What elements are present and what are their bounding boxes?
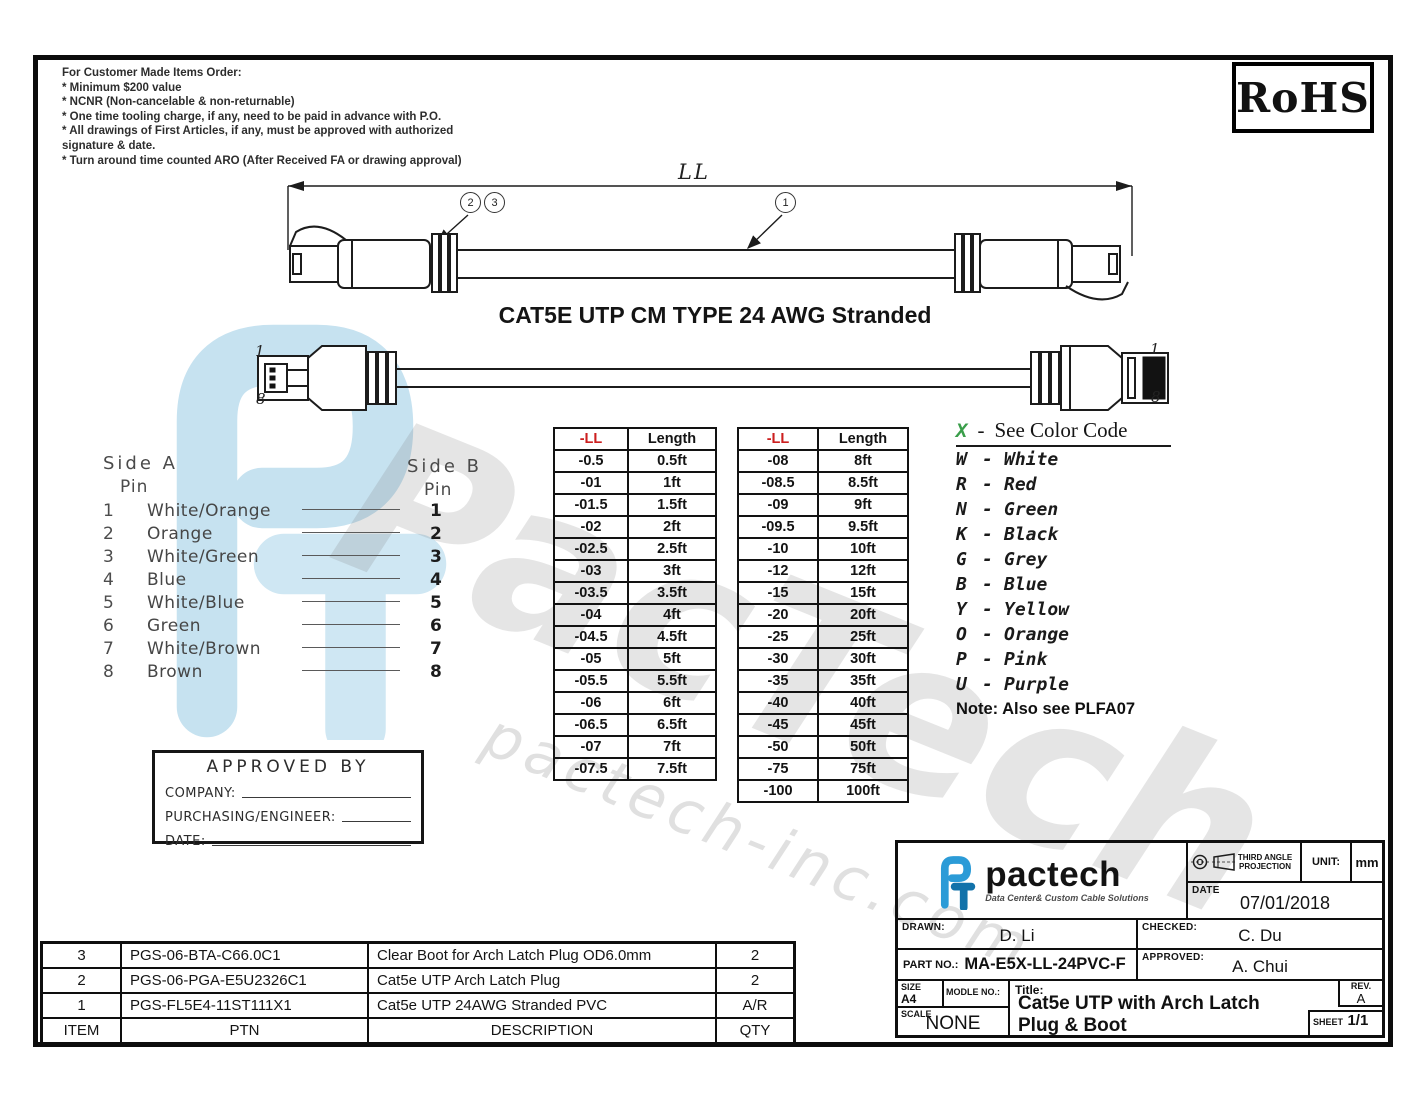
date-signature-line <box>212 845 411 846</box>
ll-code: -0.5 <box>554 450 628 472</box>
length-value: 9.5ft <box>818 516 908 538</box>
scale-label: SCALE <box>901 1009 932 1019</box>
ll-code: -09 <box>738 494 818 516</box>
side-b-pin-number: 2 <box>430 524 442 544</box>
length-value: 1ft <box>628 472 716 494</box>
pinout-row: 1 White/Orange 1 <box>103 499 583 522</box>
company-label: COMPANY: <box>165 786 236 801</box>
length-value: 45ft <box>818 714 908 736</box>
part-no-value: MA-E5X-LL-24PVC-F <box>964 955 1125 974</box>
ll-code: -04.5 <box>554 626 628 648</box>
color-code-entry: G - Grey <box>956 547 1171 572</box>
purchasing-label: PURCHASING/ENGINEER: <box>165 810 336 825</box>
date-label: DATE <box>1192 885 1220 896</box>
bom-header-row: ITEM PTN DESCRIPTION QTY <box>42 1018 795 1044</box>
side-b-pin-number: 7 <box>430 639 442 659</box>
wire-color-name: White/Orange <box>147 501 302 521</box>
note-line: * All drawings of First Articles, if any… <box>62 124 462 139</box>
ll-code: -06.5 <box>554 714 628 736</box>
side-b-pin-number: 6 <box>430 616 442 636</box>
module-no-cell: MODLE NO.: <box>942 981 1008 1006</box>
ll-code: -06 <box>554 692 628 714</box>
bom-row: 3 PGS-06-BTA-C66.0C1 Clear Boot for Arch… <box>42 943 795 969</box>
length-value: 1.5ft <box>628 494 716 516</box>
color-code-entry: R - Red <box>956 472 1171 497</box>
checked-label: CHECKED: <box>1142 922 1197 933</box>
bom-qty: A/R <box>716 993 795 1018</box>
length-row: -45 45ft <box>738 714 908 736</box>
ll-column-header: -LL <box>738 428 818 450</box>
length-row: -04.5 4.5ft <box>554 626 716 648</box>
ll-code: -10 <box>738 538 818 560</box>
wire-connection-line <box>302 601 400 602</box>
callout-2-bubble: 2 <box>460 192 481 213</box>
color-letter: B <box>956 574 982 595</box>
ll-code: -03.5 <box>554 582 628 604</box>
side-a-pin-number: 4 <box>103 570 147 590</box>
pin-label-right-bottom: 8 <box>1151 388 1161 406</box>
color-code-x: X <box>956 420 967 442</box>
brand-tagline: Data Center& Custom Cable Solutions <box>985 893 1149 903</box>
ll-code: -45 <box>738 714 818 736</box>
length-row: -05 5ft <box>554 648 716 670</box>
purchasing-signature-line <box>342 821 411 822</box>
pinout-row: 4 Blue 4 <box>103 568 583 591</box>
module-no-label: MODLE NO.: <box>946 987 1000 997</box>
title-cell: Title: Cat5e UTP with Arch Latch Plug & … <box>1008 981 1382 1035</box>
length-value: 35ft <box>818 670 908 692</box>
side-a-pin-number: 2 <box>103 524 147 544</box>
pactech-logo-icon <box>935 852 977 910</box>
pinout-row: 8 Brown 8 <box>103 660 583 683</box>
length-row: -25 25ft <box>738 626 908 648</box>
ll-code: -50 <box>738 736 818 758</box>
length-value: 4ft <box>628 604 716 626</box>
ll-code: -03 <box>554 560 628 582</box>
length-row: -01.5 1.5ft <box>554 494 716 516</box>
length-value: 50ft <box>818 736 908 758</box>
callout-2-3: 2 3 <box>460 192 505 213</box>
color-letter: O <box>956 624 982 645</box>
bom-description: Clear Boot for Arch Latch Plug OD6.0mm <box>368 943 716 969</box>
length-row: -04 4ft <box>554 604 716 626</box>
color-code-entry: W - White <box>956 447 1171 472</box>
ll-code: -100 <box>738 780 818 802</box>
color-letter: Y <box>956 599 982 620</box>
note-line: signature & date. <box>62 139 462 154</box>
wire-connection-line <box>302 647 400 648</box>
color-code-entry: K - Black <box>956 522 1171 547</box>
ll-code: -25 <box>738 626 818 648</box>
side-a-title: Side A <box>103 453 178 474</box>
length-table-1: -LL Length -0.5 0.5ft -01 1ft -01.5 1.5f… <box>553 427 717 781</box>
ll-code: -05.5 <box>554 670 628 692</box>
approved-cell: APPROVED: A. Chui <box>1136 950 1382 979</box>
color-name: Green <box>1004 499 1058 520</box>
length-value: 40ft <box>818 692 908 714</box>
pinout-row: 2 Orange 2 <box>103 522 583 545</box>
pinout-row: 6 Green 6 <box>103 614 583 637</box>
wire-connection-line <box>302 670 400 671</box>
sheet-cell: SHEET 1/1 <box>1308 1010 1382 1035</box>
brand-logo-cell: pactech Data Center& Custom Cable Soluti… <box>898 843 1186 918</box>
color-name: Blue <box>1004 574 1047 595</box>
ll-code: -02.5 <box>554 538 628 560</box>
side-a-pin-number: 8 <box>103 662 147 682</box>
pin-label-left-top: 1 <box>255 342 265 360</box>
bom-item: 1 <box>42 993 122 1018</box>
length-row: -20 20ft <box>738 604 908 626</box>
length-value: 2.5ft <box>628 538 716 560</box>
side-b-pin-number: 1 <box>430 501 442 521</box>
callout-1: 1 <box>775 192 796 213</box>
bom-table: 3 PGS-06-BTA-C66.0C1 Clear Boot for Arch… <box>40 941 796 1045</box>
color-letter: N <box>956 499 982 520</box>
ll-code: -05 <box>554 648 628 670</box>
ll-code: -75 <box>738 758 818 780</box>
length-row: -40 40ft <box>738 692 908 714</box>
wire-color-name: White/Brown <box>147 639 302 659</box>
color-letter: P <box>956 649 982 670</box>
color-code-note: Note: Also see PLFA07 <box>956 700 1171 719</box>
color-name: Red <box>1004 474 1037 495</box>
side-a-pin-number: 1 <box>103 501 147 521</box>
checked-cell: CHECKED: C. Du <box>1136 920 1382 948</box>
wire-connection-line <box>302 509 400 510</box>
length-value: 7ft <box>628 736 716 758</box>
ll-code: -02 <box>554 516 628 538</box>
bom-row: 2 PGS-06-PGA-E5U2326C1 Cat5e UTP Arch La… <box>42 968 795 993</box>
scale-cell: SCALE NONE <box>898 1006 1008 1035</box>
sheet-label: SHEET <box>1313 1017 1343 1027</box>
color-name: Yellow <box>1004 599 1069 620</box>
side-b-pin-number: 3 <box>430 547 442 567</box>
length-value: 30ft <box>818 648 908 670</box>
length-table-2-header: -LL Length <box>738 428 908 450</box>
length-value: 10ft <box>818 538 908 560</box>
length-row: -08.5 8.5ft <box>738 472 908 494</box>
length-row: -15 15ft <box>738 582 908 604</box>
wire-color-name: Brown <box>147 662 302 682</box>
bom-qty: 2 <box>716 943 795 969</box>
pinout-row: 7 White/Brown 7 <box>103 637 583 660</box>
length-value: 0.5ft <box>628 450 716 472</box>
wire-color-name: Green <box>147 616 302 636</box>
approval-box-title: APPROVED BY <box>165 757 411 777</box>
color-letter: R <box>956 474 982 495</box>
ll-code: -30 <box>738 648 818 670</box>
color-code-entry: N - Green <box>956 497 1171 522</box>
wire-connection-line <box>302 578 400 579</box>
rohs-badge: RoHS <box>1232 62 1374 133</box>
title-block: pactech Data Center& Custom Cable Soluti… <box>895 840 1385 1038</box>
color-code-legend: X - See Color Code W - White R - Red N -… <box>956 418 1171 719</box>
wire-connection-line <box>302 624 400 625</box>
color-name: Pink <box>1004 649 1047 670</box>
bom-header-ptn: PTN <box>121 1018 368 1044</box>
side-a-pin-number: 5 <box>103 593 147 613</box>
length-row: -05.5 5.5ft <box>554 670 716 692</box>
color-name: Orange <box>1004 624 1069 645</box>
note-line: * NCNR (Non-cancelable & non-returnable) <box>62 95 462 110</box>
length-row: -01 1ft <box>554 472 716 494</box>
length-value: 5ft <box>628 648 716 670</box>
length-row: -75 75ft <box>738 758 908 780</box>
length-value: 8.5ft <box>818 472 908 494</box>
brand-name: pactech <box>985 858 1149 892</box>
rev-value: A <box>1340 991 1382 1006</box>
length-value: 12ft <box>818 560 908 582</box>
ll-code: -20 <box>738 604 818 626</box>
sheet-value: 1/1 <box>1347 1012 1368 1029</box>
wire-color-name: Orange <box>147 524 302 544</box>
bom-ptn: PGS-06-PGA-E5U2326C1 <box>121 968 368 993</box>
color-code-entry: B - Blue <box>956 572 1171 597</box>
length-row: -12 12ft <box>738 560 908 582</box>
length-row: -06.5 6.5ft <box>554 714 716 736</box>
length-value: 75ft <box>818 758 908 780</box>
length-row: -100 100ft <box>738 780 908 802</box>
bom-ptn: PGS-FL5E4-11ST111X1 <box>121 993 368 1018</box>
color-letter: W <box>956 449 982 470</box>
side-b-pin-word: Pin <box>424 480 452 500</box>
cable-spec-title: CAT5E UTP CM TYPE 24 AWG Stranded <box>420 302 1010 329</box>
color-letter: K <box>956 524 982 545</box>
ll-code: -15 <box>738 582 818 604</box>
length-column-header: Length <box>818 428 908 450</box>
company-signature-line <box>242 797 411 798</box>
bom-item: 3 <box>42 943 122 969</box>
length-row: -09.5 9.5ft <box>738 516 908 538</box>
color-code-entry: Y - Yellow <box>956 597 1171 622</box>
length-row: -03.5 3.5ft <box>554 582 716 604</box>
unit-value: mm <box>1350 843 1382 881</box>
ll-code: -12 <box>738 560 818 582</box>
length-value: 3.5ft <box>628 582 716 604</box>
side-a-pin-word: Pin <box>120 477 148 497</box>
length-row: -07 7ft <box>554 736 716 758</box>
dimension-label: LL <box>678 160 710 184</box>
bom-header-qty: QTY <box>716 1018 795 1044</box>
length-table-1-header: -LL Length <box>554 428 716 450</box>
note-line: * One time tooling charge, if any, need … <box>62 110 462 125</box>
callout-3-bubble: 3 <box>484 192 505 213</box>
date-label: DATE: <box>165 834 206 849</box>
drawn-label: DRAWN: <box>902 922 945 933</box>
ll-code: -01.5 <box>554 494 628 516</box>
color-name: White <box>1004 449 1058 470</box>
title-value: Cat5e UTP with Arch Latch Plug & Boot <box>1018 997 1298 1033</box>
length-value: 9ft <box>818 494 908 516</box>
bom-header-description: DESCRIPTION <box>368 1018 716 1044</box>
ll-code: -07.5 <box>554 758 628 780</box>
part-no-cell: PART NO.: MA-E5X-LL-24PVC-F <box>898 950 1136 979</box>
length-value: 3ft <box>628 560 716 582</box>
ll-code: -35 <box>738 670 818 692</box>
length-column-header: Length <box>628 428 716 450</box>
wire-color-name: White/Green <box>147 547 302 567</box>
pinout-table: 1 White/Orange 1 2 Orange 2 3 White/Gree… <box>103 499 583 683</box>
part-no-label: PART NO.: <box>903 959 958 971</box>
ll-code: -08 <box>738 450 818 472</box>
length-row: -35 35ft <box>738 670 908 692</box>
length-row: -0.5 0.5ft <box>554 450 716 472</box>
length-row: -08 8ft <box>738 450 908 472</box>
length-value: 4.5ft <box>628 626 716 648</box>
color-code-entry: P - Pink <box>956 647 1171 672</box>
length-row: -09 9ft <box>738 494 908 516</box>
size-label: SIZE <box>901 982 939 992</box>
bom-qty: 2 <box>716 968 795 993</box>
projection-cell: THIRD ANGLE PROJECTION <box>1188 843 1300 881</box>
pinout-row: 3 White/Green 3 <box>103 545 583 568</box>
wire-connection-line <box>302 555 400 556</box>
bom-item: 2 <box>42 968 122 993</box>
ll-code: -40 <box>738 692 818 714</box>
length-value: 100ft <box>818 780 908 802</box>
color-code-entry: O - Orange <box>956 622 1171 647</box>
rev-cell: REV. A <box>1338 981 1382 1007</box>
rev-label: REV. <box>1340 981 1382 991</box>
callout-1-bubble: 1 <box>775 192 796 213</box>
color-name: Grey <box>1004 549 1047 570</box>
pinout-row: 5 White/Blue 5 <box>103 591 583 614</box>
wire-color-name: Blue <box>147 570 302 590</box>
length-value: 15ft <box>818 582 908 604</box>
length-value: 20ft <box>818 604 908 626</box>
date-cell: DATE 07/01/2018 <box>1188 881 1382 918</box>
side-b-pin-number: 5 <box>430 593 442 613</box>
bom-description: Cat5e UTP Arch Latch Plug <box>368 968 716 993</box>
bom-description: Cat5e UTP 24AWG Stranded PVC <box>368 993 716 1018</box>
ll-code: -04 <box>554 604 628 626</box>
size-cell: SIZE A4 <box>898 981 942 1006</box>
length-value: 6ft <box>628 692 716 714</box>
color-code-dash: - <box>977 418 984 443</box>
cable-drawing-dimension <box>280 158 1150 308</box>
bom-ptn: PGS-06-BTA-C66.0C1 <box>121 943 368 969</box>
note-line: * Minimum $200 value <box>62 81 462 96</box>
notes-title: For Customer Made Items Order: <box>62 66 462 81</box>
wire-connection-line <box>302 532 400 533</box>
size-value: A4 <box>901 992 939 1006</box>
length-row: -50 50ft <box>738 736 908 758</box>
length-value: 7.5ft <box>628 758 716 780</box>
side-b-title: Side B <box>407 456 482 477</box>
length-row: -30 30ft <box>738 648 908 670</box>
side-a-pin-number: 3 <box>103 547 147 567</box>
color-code-heading: X - See Color Code <box>956 418 1171 447</box>
length-value: 25ft <box>818 626 908 648</box>
side-a-pin-number: 7 <box>103 639 147 659</box>
length-row: -02.5 2.5ft <box>554 538 716 560</box>
ll-code: -01 <box>554 472 628 494</box>
length-row: -06 6ft <box>554 692 716 714</box>
length-row: -03 3ft <box>554 560 716 582</box>
length-value: 8ft <box>818 450 908 472</box>
length-value: 5.5ft <box>628 670 716 692</box>
color-letter: U <box>956 674 982 695</box>
bom-header-item: ITEM <box>42 1018 122 1044</box>
projection-label: THIRD ANGLE PROJECTION <box>1236 853 1294 871</box>
wire-color-name: White/Blue <box>147 593 302 613</box>
color-letter: G <box>956 549 982 570</box>
bom-row: 1 PGS-FL5E4-11ST111X1 Cat5e UTP 24AWG St… <box>42 993 795 1018</box>
cable-drawing-pinout <box>246 336 1171 420</box>
length-row: -10 10ft <box>738 538 908 560</box>
ll-code: -07 <box>554 736 628 758</box>
color-name: Black <box>1004 524 1058 545</box>
pin-label-right-top: 1 <box>1150 340 1160 358</box>
side-b-pin-number: 8 <box>430 662 442 682</box>
color-name: Purple <box>1004 674 1069 695</box>
length-row: -07.5 7.5ft <box>554 758 716 780</box>
third-angle-projection-icon <box>1190 848 1236 876</box>
unit-label: UNIT: <box>1300 843 1350 881</box>
side-a-pin-number: 6 <box>103 616 147 636</box>
color-code-heading-text: See Color Code <box>994 418 1127 443</box>
color-code-entry: U - Purple <box>956 672 1171 697</box>
approved-label: APPROVED: <box>1142 952 1204 963</box>
ll-column-header: -LL <box>554 428 628 450</box>
ll-code: -08.5 <box>738 472 818 494</box>
customer-notes: For Customer Made Items Order: * Minimum… <box>62 66 462 168</box>
approval-box: APPROVED BY COMPANY: PURCHASING/ENGINEER… <box>152 750 424 844</box>
length-value: 6.5ft <box>628 714 716 736</box>
pin-label-left-bottom: 8 <box>256 390 266 408</box>
ll-code: -09.5 <box>738 516 818 538</box>
length-row: -02 2ft <box>554 516 716 538</box>
side-b-pin-number: 4 <box>430 570 442 590</box>
drawn-cell: DRAWN: D. Li <box>898 920 1136 948</box>
length-value: 2ft <box>628 516 716 538</box>
length-table-2: -LL Length -08 8ft -08.5 8.5ft -09 9ft -… <box>737 427 909 803</box>
